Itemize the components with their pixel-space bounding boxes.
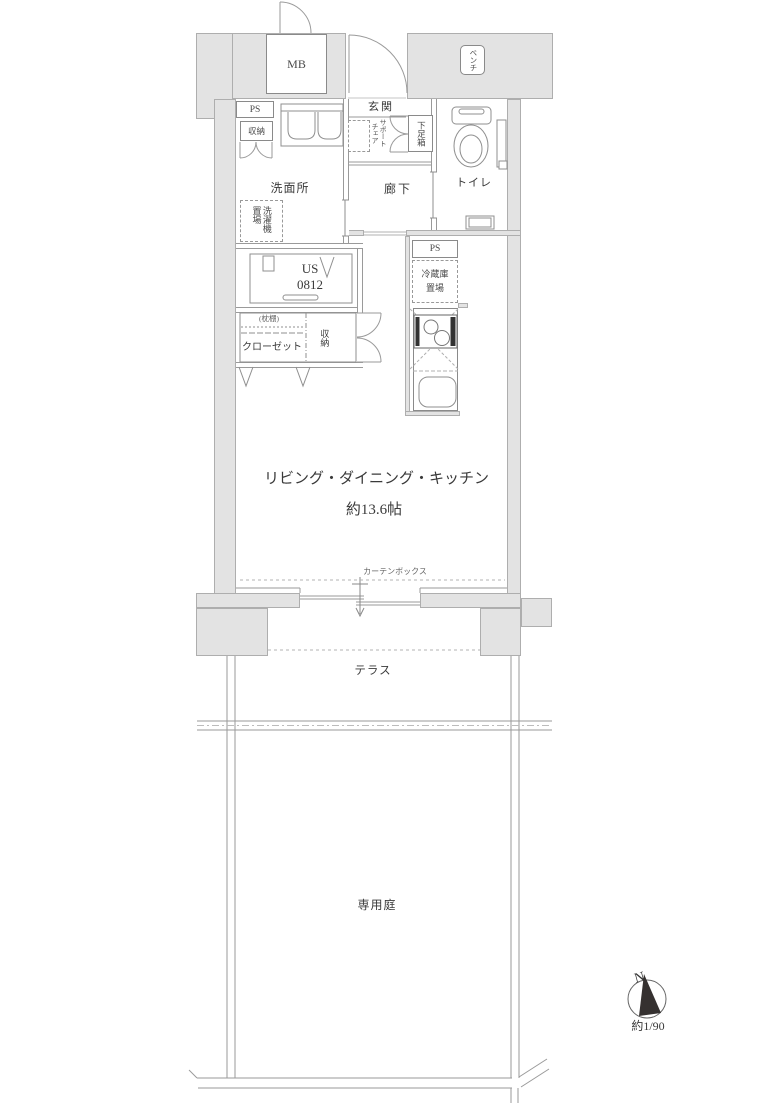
toilet-label: トイレ <box>444 177 504 191</box>
shoebox-door-arc-top <box>390 116 408 134</box>
window <box>236 577 507 650</box>
entrance-label: 玄関 <box>351 101 411 115</box>
kitchen-fixture <box>410 309 458 407</box>
ldk-size-label: 約13.6帖 <box>264 501 484 520</box>
hallway-label: 廊下 <box>368 182 428 197</box>
closet-storage-door-arc-top <box>357 313 381 337</box>
unit-bath-label-line1: US <box>283 261 337 277</box>
storage-door-arc-left <box>240 142 256 158</box>
toilet-fixture <box>452 107 507 229</box>
washroom-label: 洗面所 <box>250 181 330 196</box>
sink <box>419 377 456 407</box>
entrance-door-arc <box>349 35 407 93</box>
closet-label: クローゼット <box>227 342 317 355</box>
scale-label: 約1/90 <box>608 1019 688 1034</box>
compass: N <box>628 970 666 1018</box>
storage-door-arc-right <box>256 142 272 158</box>
vanity-fixture <box>281 104 343 146</box>
curtain-box-label: カーテンボックス <box>335 567 455 577</box>
pillow-shelf-label: (枕棚) <box>239 314 299 323</box>
shoebox-door-arc-bottom <box>390 134 408 152</box>
terrace-label: テラス <box>333 664 413 678</box>
storage-closet-label: 収納 <box>319 324 329 352</box>
private-garden-label: 専用庭 <box>337 898 417 913</box>
fence <box>189 656 552 1103</box>
unit-bath-label: US 0812 <box>283 261 337 294</box>
floor-plan: MB ベンチ PS 収納 洗濯機置場 サポートチェア 下足箱 PS 冷蔵庫 置場 <box>0 0 770 1114</box>
linework-layer: N <box>0 0 770 1114</box>
unit-bath-label-line2: 0812 <box>283 277 337 293</box>
mb-door-arc <box>280 2 311 33</box>
closet-storage-door-arc-bottom <box>357 338 381 362</box>
ldk-label: リビング・ダイニング・キッチン <box>264 470 484 489</box>
